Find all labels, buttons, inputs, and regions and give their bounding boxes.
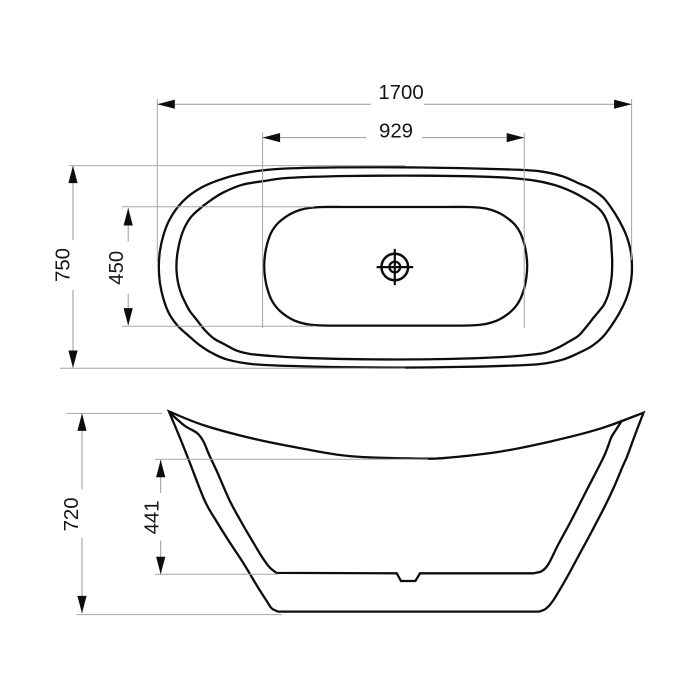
svg-text:450: 450: [106, 251, 128, 285]
svg-text:750: 750: [53, 248, 75, 282]
svg-text:441: 441: [141, 500, 163, 534]
svg-text:929: 929: [379, 120, 413, 142]
svg-text:720: 720: [61, 497, 83, 531]
svg-text:1700: 1700: [378, 82, 423, 104]
